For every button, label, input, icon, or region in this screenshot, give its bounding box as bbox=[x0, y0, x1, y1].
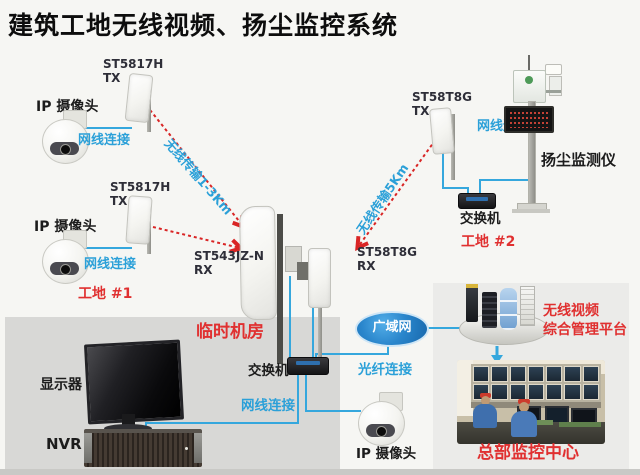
site2-switch-label: 交换机 bbox=[460, 212, 501, 228]
tx1-antenna-icon bbox=[125, 73, 154, 123]
diagram-canvas: 建筑工地无线视频、扬尘监控系统 ST5817H TX IP 摄像头 网线连接 S… bbox=[0, 0, 640, 475]
room-switch-label: 交换机 bbox=[248, 364, 289, 380]
nvr-label: NVR bbox=[46, 436, 82, 453]
dust-station-sensor bbox=[545, 64, 562, 75]
control-room-photo bbox=[457, 360, 605, 444]
dust-station-cabinet bbox=[513, 70, 546, 103]
dust-led-dots bbox=[509, 111, 549, 128]
dust-station-sensor2 bbox=[549, 76, 562, 96]
fiber-label: 光纤连接 bbox=[358, 363, 412, 379]
switch-ports bbox=[466, 197, 488, 201]
switch-ports bbox=[296, 361, 320, 365]
nvr-right-cap bbox=[194, 433, 202, 463]
nvr-led-icon bbox=[185, 447, 188, 450]
dust-station-foot bbox=[512, 209, 550, 213]
machine-room-label: 临时机房 bbox=[196, 323, 264, 343]
photo-operator2-body bbox=[511, 411, 537, 437]
cable2-label: 网线连接 bbox=[84, 258, 136, 273]
camera-face bbox=[50, 142, 79, 155]
dust-station-logo-icon bbox=[525, 76, 533, 84]
monitor-label: 显示器 bbox=[40, 377, 82, 393]
monitor-screen-icon bbox=[84, 340, 184, 425]
rx1-model-label: ST543JZ-N RX bbox=[194, 250, 264, 278]
camera3-label: IP 摄像头 bbox=[356, 447, 416, 463]
server-pillar-top bbox=[466, 284, 478, 288]
camera-lens-icon bbox=[60, 264, 71, 275]
cable1-label: 网线连接 bbox=[78, 134, 130, 149]
photo-operator1-body bbox=[473, 404, 497, 428]
tx2-antenna-icon bbox=[125, 195, 152, 245]
room-switch-icon bbox=[287, 357, 329, 375]
camera-lens-icon bbox=[60, 144, 71, 155]
rx2-model-label: ST58T8G RX bbox=[357, 246, 417, 274]
nvr-icon bbox=[84, 429, 202, 467]
site1-label: 工地 #1 bbox=[78, 286, 132, 302]
tx3-antenna-icon bbox=[429, 107, 455, 155]
ip-camera-3-icon bbox=[358, 392, 410, 446]
cable-tx3-switch2 bbox=[443, 150, 468, 194]
server-tower-icon bbox=[482, 292, 497, 328]
server-stack-icon bbox=[500, 288, 517, 330]
server-rack-icon bbox=[520, 286, 535, 326]
cable-dust-switch2 bbox=[480, 180, 530, 194]
camera-face bbox=[50, 262, 79, 275]
dust-led-display bbox=[504, 106, 554, 133]
camera-lens-icon bbox=[376, 426, 387, 437]
nvr-left-cap bbox=[84, 433, 92, 463]
page-title: 建筑工地无线视频、扬尘监控系统 bbox=[8, 12, 398, 41]
rx1-pole bbox=[277, 214, 283, 364]
cable4-label: 网线连接 bbox=[241, 399, 295, 415]
camera-face bbox=[366, 424, 395, 437]
rx2-antenna-icon bbox=[308, 248, 331, 308]
wan-cloud-icon: 广域网 bbox=[355, 311, 429, 347]
photo-desk-strip bbox=[559, 422, 601, 427]
server-pillar-icon bbox=[466, 284, 478, 322]
site2-switch-icon bbox=[458, 193, 496, 209]
wan-label: 广域网 bbox=[357, 313, 427, 345]
site2-label: 工地 #2 bbox=[461, 234, 515, 250]
bottom-strip bbox=[0, 469, 640, 475]
hq-center-label: 总部监控中心 bbox=[477, 444, 579, 464]
wireless-5km-label: 无线传输5Km bbox=[350, 155, 416, 243]
dust-monitor-label: 扬尘监测仪 bbox=[541, 152, 616, 169]
wireless-1-3km-label: 无线传输1-3Km bbox=[158, 133, 237, 221]
platform-label-line2: 综合管理平台 bbox=[543, 322, 627, 338]
platform-label-line1: 无线视频 bbox=[543, 303, 599, 319]
wireless-link-tx2-rx1 bbox=[153, 227, 240, 248]
